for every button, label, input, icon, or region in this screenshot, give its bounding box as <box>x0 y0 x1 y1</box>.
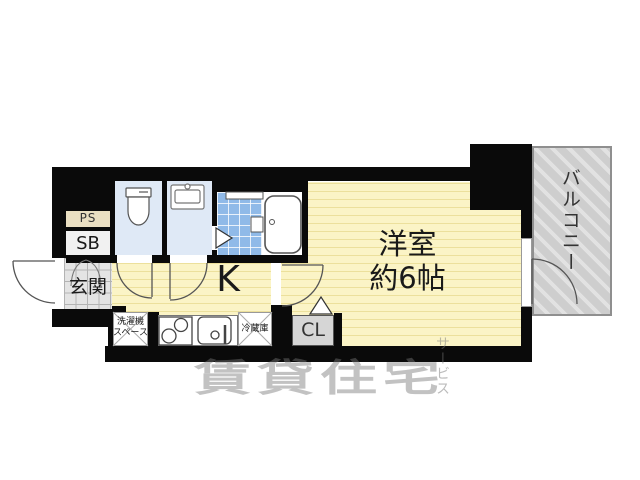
bathroom-door-opening <box>212 226 217 250</box>
kitchen-counter <box>158 315 238 346</box>
watermark-subtext: サービス <box>432 336 452 396</box>
wall <box>521 210 532 240</box>
sb-label: SB <box>66 234 110 254</box>
washer-space-line1: 洗濯機 <box>111 317 150 328</box>
western-room-label: 洋室 約6帖 <box>320 227 495 295</box>
wall <box>521 307 532 346</box>
balcony-label: バルコニー <box>559 168 580 273</box>
bathroom-tile-floor <box>217 192 262 257</box>
washer-space-label: 洗濯機 スペース <box>111 317 150 339</box>
watermark-text: 賃貸住宅 <box>194 347 446 402</box>
western-room-size: 約6帖 <box>320 261 495 295</box>
floor-plan: PS SB 玄関 K CL 洋室 約6帖 バルコニー 洗濯機 スペース 冷蔵庫 … <box>0 0 640 480</box>
ps-label: PS <box>66 212 110 225</box>
wall <box>271 305 292 348</box>
room-door-opening <box>271 263 281 305</box>
bathtub-area <box>262 192 303 257</box>
wall <box>212 192 217 226</box>
wall <box>52 309 112 327</box>
closet-label: CL <box>292 320 334 341</box>
wall <box>110 181 115 258</box>
kitchen-label: K <box>200 260 256 300</box>
toilet-room-floor <box>115 180 162 255</box>
balcony-door-opening <box>521 238 532 307</box>
refrigerator-label: 冷蔵庫 <box>238 325 272 335</box>
wall <box>470 144 532 210</box>
wall <box>334 313 342 348</box>
wall <box>302 192 308 257</box>
wall <box>162 180 167 255</box>
entrance-label: 玄関 <box>61 277 115 298</box>
washroom-floor <box>167 180 212 255</box>
western-room-name: 洋室 <box>320 227 495 261</box>
wall <box>212 167 308 192</box>
front-door-swing <box>13 261 55 303</box>
washer-space-line2: スペース <box>111 328 150 339</box>
toilet-door-opening <box>117 255 152 263</box>
wall <box>52 167 66 258</box>
